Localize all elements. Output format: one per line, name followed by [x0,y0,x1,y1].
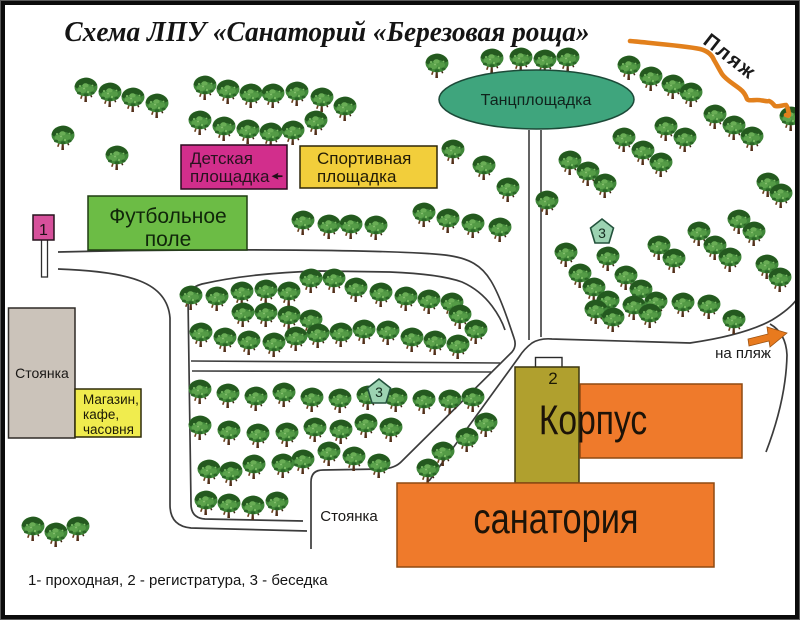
svg-text:3: 3 [375,384,383,400]
svg-text:кафе,: кафе, [83,407,119,422]
svg-text:поле: поле [145,228,192,251]
svg-text:на пляж: на пляж [715,345,771,362]
svg-text:Детская: Детская [190,149,253,168]
svg-text:Танцплощадка: Танцплощадка [481,92,592,109]
svg-text:Спортивная: Спортивная [317,149,411,168]
svg-text:1: 1 [39,222,48,239]
svg-text:Схема ЛПУ «Санаторий «Березова: Схема ЛПУ «Санаторий «Березовая роща» [64,16,589,48]
svg-text:Стоянка: Стоянка [320,508,378,525]
svg-text:Стоянка: Стоянка [15,365,69,381]
svg-text:часовня: часовня [83,422,134,437]
svg-text:площадка: площадка [190,167,270,186]
svg-text:площадка: площадка [317,167,397,186]
svg-text:1- проходная, 2 - регистратура: 1- проходная, 2 - регистратура, 3 - бесе… [28,572,328,589]
svg-text:санатория: санатория [473,495,638,542]
svg-text:3: 3 [598,225,606,241]
svg-text:Магазин,: Магазин, [83,392,139,407]
svg-text:Футбольное: Футбольное [109,205,226,228]
svg-text:Корпус: Корпус [539,398,647,444]
svg-text:2: 2 [548,369,557,388]
